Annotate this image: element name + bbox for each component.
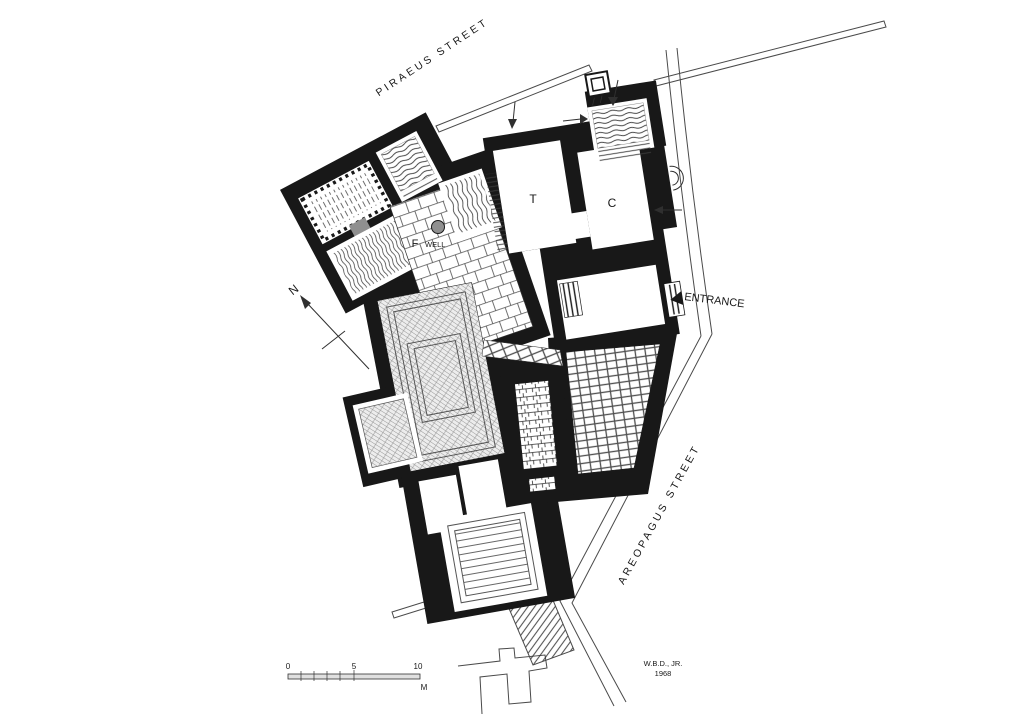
door-arrow-t-head — [508, 119, 517, 129]
well-label: WELL — [425, 240, 445, 249]
credit-year: 1968 — [655, 669, 672, 678]
north-arrow-head — [300, 295, 311, 309]
question-label: ? — [657, 217, 664, 232]
fountain-label: F — [412, 238, 419, 250]
scale-zero-label: 0 — [286, 662, 291, 671]
scale-five-label: 5 — [352, 662, 357, 671]
wellhead-inner — [591, 77, 605, 91]
apse-arc-outer — [669, 165, 685, 191]
site-plan-drawing: F WELL T C ENTRANCE ? N PIRAEUS STREET A… — [0, 0, 1024, 724]
door-arrow-c-line — [563, 119, 581, 121]
stair-tile-pair — [529, 476, 556, 492]
north-mosaic-room-pattern — [592, 103, 649, 149]
piraeus-street-label: PIRAEUS STREET — [374, 16, 491, 99]
entrance-group: ENTRANCE — [684, 291, 746, 310]
scale-ten-label: 10 — [414, 662, 423, 671]
scale-bar: 0 5 10 M — [286, 662, 428, 692]
well-circle — [432, 221, 445, 234]
plan-canvas: F WELL T C ENTRANCE ? N PIRAEUS STREET A… — [0, 0, 1024, 724]
apse-arc-inner — [670, 170, 679, 185]
room-t-label: T — [529, 192, 537, 206]
scale-unit-label: M — [421, 683, 428, 692]
room-c-label: C — [608, 196, 617, 210]
entrance-label: ENTRANCE — [684, 291, 746, 310]
north-label: N — [286, 282, 301, 298]
credit-author: W.B.D., JR. — [644, 659, 683, 668]
piraeus-curb-east — [654, 21, 886, 86]
credit: W.B.D., JR. 1968 — [644, 659, 683, 678]
striped-room-pattern — [455, 519, 531, 595]
